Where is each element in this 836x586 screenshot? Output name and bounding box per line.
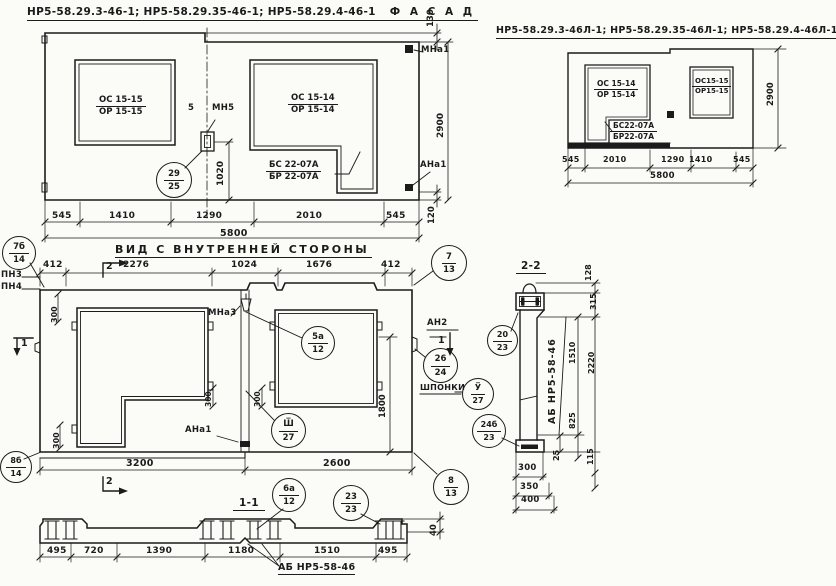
dim-25: 25 bbox=[553, 450, 561, 461]
section-mark-2-bottom: 2 bbox=[106, 477, 113, 487]
dim-1390: 1390 bbox=[146, 547, 172, 556]
dim-1676: 1676 bbox=[306, 261, 332, 270]
label-ab-s22: АБ НР5-58-46 bbox=[548, 338, 558, 424]
label-an2: АН2 bbox=[427, 319, 448, 328]
dim-315: 315 bbox=[590, 293, 598, 310]
dim-495-a: 495 bbox=[47, 547, 67, 556]
dim-m2010: 2010 bbox=[603, 156, 626, 164]
dim-128: 128 bbox=[585, 264, 593, 281]
blueprint-sheet: НР5-58.29.3-46-1; НР5-58.29.35-46-1; НР5… bbox=[0, 0, 836, 586]
label-shponki: ШПОНКИ bbox=[420, 384, 465, 392]
window-mark-left: ОС 15-15ОР 15-15 bbox=[96, 95, 146, 118]
balloon-24b-23: 24б23 bbox=[472, 414, 506, 448]
balloon-8b-14: 8б14 bbox=[0, 451, 32, 483]
label-mna3: МНа3 bbox=[208, 309, 236, 318]
label-ana1-inner: АНа1 bbox=[185, 426, 212, 435]
dim-5: 5 bbox=[188, 104, 194, 113]
dim-m545-a: 545 bbox=[562, 156, 580, 164]
dim-400: 400 bbox=[521, 496, 540, 505]
dim-3200: 3200 bbox=[126, 459, 154, 469]
balloon-26-24: 2624 bbox=[423, 348, 458, 383]
dim-1510-s22: 1510 bbox=[569, 342, 577, 364]
anchor-square-ana1 bbox=[405, 184, 413, 191]
label-pn3: ПН3 bbox=[1, 271, 22, 280]
door-mark-mirror: БС22-07АБР22-07А bbox=[610, 121, 657, 142]
dim-495-b: 495 bbox=[378, 547, 398, 556]
balloon-sh-27: Ш̅27 bbox=[271, 413, 306, 448]
dim-115: 115 bbox=[587, 448, 595, 465]
label-pn4: ПН4 bbox=[1, 283, 22, 292]
section-2-2-title: 2-2 bbox=[516, 261, 546, 274]
balloon-5a-12: 5а12 bbox=[301, 326, 335, 360]
section-mark-2-top: 2 bbox=[106, 262, 113, 272]
dim-m1410: 1410 bbox=[689, 156, 712, 164]
label-mn5: МН5 bbox=[212, 104, 234, 113]
dim-300-b: 300 bbox=[53, 432, 61, 449]
dim-130: 130 bbox=[427, 9, 436, 27]
facade-mirror-title: НР5-58.29.3-46Л-1; НР5-58.29.35-46Л-1; Н… bbox=[496, 26, 836, 39]
section-1-1-title: 1-1 bbox=[233, 498, 265, 511]
dim-1290: 1290 bbox=[196, 212, 222, 221]
dim-5800-main: 5800 bbox=[220, 229, 248, 239]
label-mna1: МНа1 bbox=[421, 46, 449, 55]
dim-1800: 1800 bbox=[379, 394, 388, 418]
dim-545-a: 545 bbox=[52, 212, 72, 221]
facade-main-title-text: НР5-58.29.3-46-1; НР5-58.29.35-46-1; НР5… bbox=[27, 6, 376, 18]
section-mark-1-right: 1 bbox=[438, 336, 445, 346]
dim-412-b: 412 bbox=[381, 261, 401, 270]
label-ana1-facade: АНа1 bbox=[420, 161, 447, 170]
dim-m1290: 1290 bbox=[661, 156, 684, 164]
facade-mirror-title-text: НР5-58.29.3-46Л-1; НР5-58.29.35-46Л-1; Н… bbox=[496, 25, 836, 36]
dim-2600: 2600 bbox=[323, 459, 351, 469]
inner-view-title: ВИД С ВНУТРЕННЕЙ СТОРОНЫ bbox=[115, 244, 372, 258]
balloon-8-13: 813 bbox=[433, 469, 469, 505]
dim-1510-s11: 1510 bbox=[314, 547, 340, 556]
balloon-23-23: 2323 bbox=[333, 485, 369, 521]
dim-300-a: 300 bbox=[51, 306, 59, 323]
balloon-6a-12: 6а12 bbox=[272, 478, 306, 512]
anchor-square-mirror bbox=[667, 111, 674, 118]
window-mark-mirror-right: ОС15-15ОР15-15 bbox=[692, 77, 731, 96]
dim-1024: 1024 bbox=[231, 261, 257, 270]
facade-main-title: НР5-58.29.3-46-1; НР5-58.29.35-46-1; НР5… bbox=[27, 7, 478, 21]
dim-m545-b: 545 bbox=[733, 156, 751, 164]
balloon-u-27: У̅27 bbox=[462, 378, 494, 410]
dim-1410: 1410 bbox=[109, 212, 135, 221]
dim-5800-mirror: 5800 bbox=[650, 172, 675, 181]
dim-545-b: 545 bbox=[386, 212, 406, 221]
anchor-square-mna1 bbox=[405, 45, 413, 53]
dim-300-d: 300 bbox=[254, 391, 262, 407]
dim-1020: 1020 bbox=[217, 161, 226, 186]
dim-720: 720 bbox=[84, 547, 104, 556]
section-1-arrow-left bbox=[14, 348, 21, 356]
dim-1180: 1180 bbox=[228, 547, 254, 556]
dim-120: 120 bbox=[428, 206, 437, 224]
balloon-7b-14: 7б14 bbox=[2, 236, 36, 270]
dim-825: 825 bbox=[569, 412, 577, 429]
door-mark: БС 22-07АБР 22-07А bbox=[266, 160, 321, 183]
dim-350: 350 bbox=[520, 483, 539, 492]
label-ab-s11: АБ НР5-58-46 bbox=[278, 563, 355, 575]
dim-300-s22: 300 bbox=[518, 464, 537, 473]
dim-2900-main: 2900 bbox=[437, 113, 446, 138]
dim-2220: 2220 bbox=[588, 352, 596, 374]
dim-40: 40 bbox=[430, 524, 439, 536]
dim-2900-mirror: 2900 bbox=[767, 82, 776, 106]
dim-300-c: 300 bbox=[205, 391, 213, 407]
dim-412-a: 412 bbox=[43, 261, 63, 270]
dim-2276: 2276 bbox=[123, 261, 149, 270]
window-mark-mirror-left: ОС 15-14ОР 15-14 bbox=[594, 79, 638, 100]
section-mark-1-left: 1 bbox=[21, 339, 28, 349]
dim-2010: 2010 bbox=[296, 212, 322, 221]
anchor-square-inner bbox=[240, 441, 250, 447]
balloon-29-25: 2925 bbox=[156, 162, 192, 198]
balloon-20-23: 2023 bbox=[487, 325, 518, 356]
window-mark-right: ОС 15-14ОР 15-14 bbox=[288, 93, 338, 116]
balloon-7-13: 713 bbox=[431, 245, 467, 281]
section-2-arrow-bottom bbox=[119, 488, 128, 495]
